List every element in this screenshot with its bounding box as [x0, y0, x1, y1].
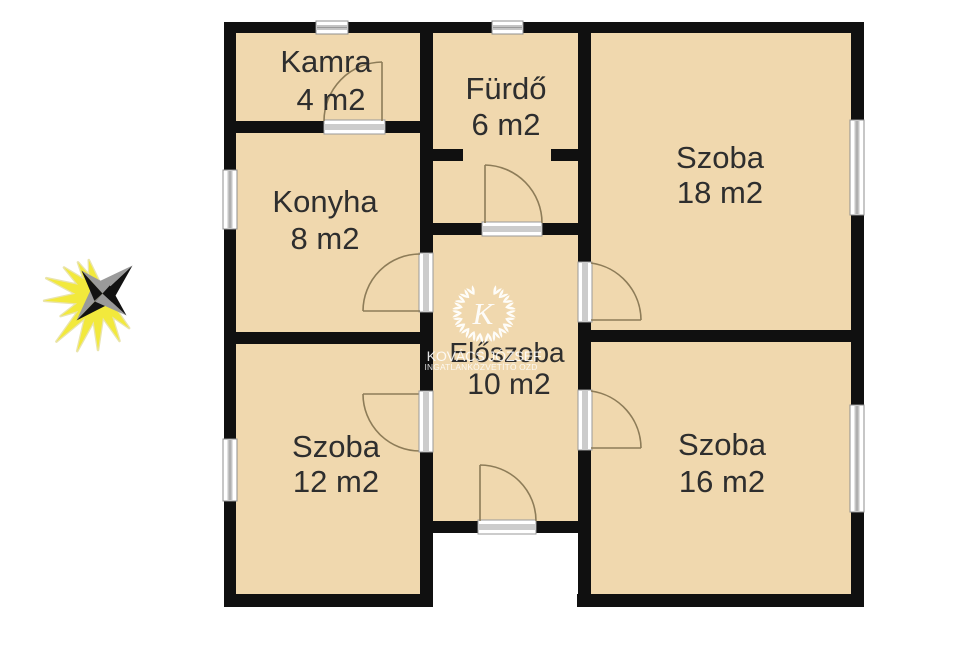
svg-text:Szoba: Szoba — [678, 427, 767, 462]
svg-text:INGATLANKÖZVETÍTŐ OZD: INGATLANKÖZVETÍTŐ OZD — [425, 362, 538, 372]
svg-text:16 m2: 16 m2 — [679, 464, 765, 499]
svg-text:4 m2: 4 m2 — [297, 82, 366, 117]
svg-text:10 m2: 10 m2 — [467, 368, 550, 401]
svg-text:Szoba: Szoba — [676, 140, 765, 175]
svg-text:Konyha: Konyha — [272, 184, 378, 219]
svg-text:18 m2: 18 m2 — [677, 175, 763, 210]
svg-text:12 m2: 12 m2 — [293, 464, 379, 499]
svg-text:K: K — [472, 296, 496, 331]
svg-text:Fürdő: Fürdő — [466, 71, 547, 106]
svg-text:6 m2: 6 m2 — [472, 107, 541, 142]
svg-text:8 m2: 8 m2 — [291, 221, 360, 256]
svg-text:Kamra: Kamra — [280, 44, 372, 79]
svg-text:Szoba: Szoba — [292, 429, 381, 464]
